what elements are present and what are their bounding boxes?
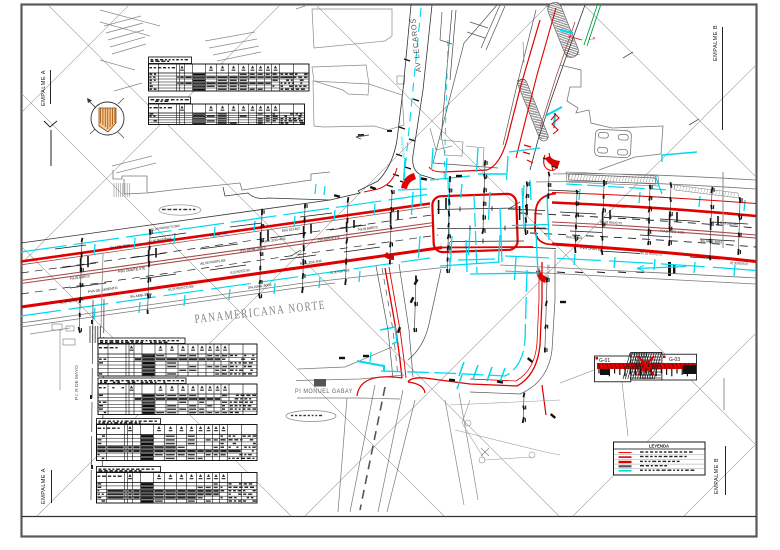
- svg-text:EMPALME B: EMPALME B: [714, 458, 720, 494]
- svg-text:LEYENDA: LEYENDA: [649, 443, 669, 448]
- svg-text:L.P.: L.P.: [589, 36, 596, 41]
- svg-text:EMPALME A: EMPALME A: [41, 468, 47, 504]
- svg-text:EMPALME B: EMPALME B: [713, 25, 719, 61]
- svg-text:PJ. R DE MAYO: PJ. R DE MAYO: [74, 365, 80, 400]
- svg-text:EMPALME A: EMPALME A: [41, 70, 47, 106]
- svg-text:PI MONUEL GABAY: PI MONUEL GABAY: [295, 389, 353, 395]
- svg-text:G-03: G-03: [669, 357, 680, 363]
